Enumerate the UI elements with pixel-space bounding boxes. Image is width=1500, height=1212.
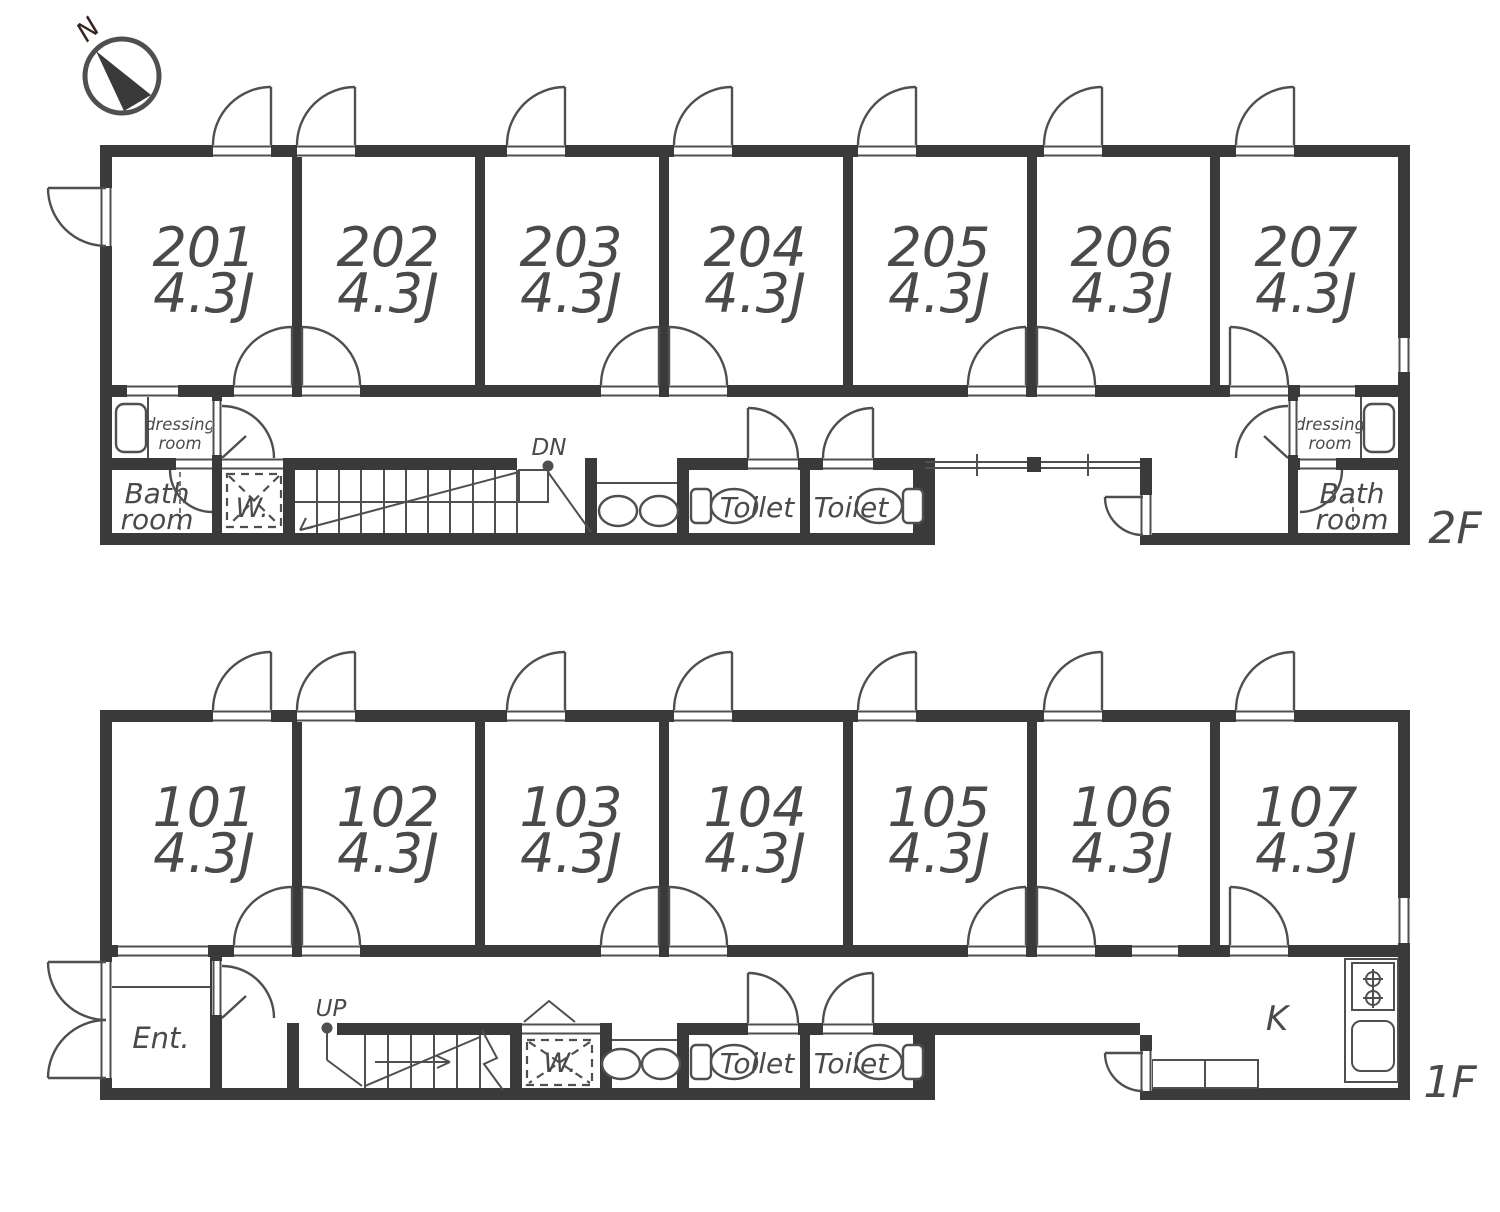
entrance-door-icon [48,1020,106,1078]
compass: N [71,12,159,113]
washer-label: W. [543,1048,576,1079]
washer-label: W. [235,493,268,524]
room-size: 4.3J [704,822,806,885]
dressing-door-icon [1236,401,1298,458]
window-east-2f [1398,338,1410,372]
window-east-1f [1398,898,1410,943]
washstand-2f [597,483,678,526]
dressing-room-left-2f: dressing room [116,397,215,458]
floor-plan-svg: N [0,0,1500,1212]
toilet-door-icon [823,408,873,470]
dressing-room-label: dressing [1295,415,1365,434]
floor-1f: Ent. UP W. [48,652,1477,1108]
entrance-door-icon [48,962,106,1020]
stairs-2f: DN [295,435,591,533]
dressing-room-right-2f: dressing room [1295,397,1394,458]
entrance-room-1f: Ent. [112,987,210,1055]
stairs-down-label: DN [532,435,567,461]
toilet-label: Toilet [814,1047,890,1080]
room-labels-2f: 201 4.3J 202 4.3J 203 4.3J 204 4.3J 205 … [152,216,1357,325]
dressing-door-icon [212,401,274,458]
toilet-door-icon [748,973,798,1035]
room-size: 4.3J [520,822,622,885]
bath-room-right-2f: Bath room [1315,477,1388,536]
walls-1f [100,710,1410,1100]
room-size: 4.3J [153,262,255,325]
toilet-label: Toilet [814,491,890,524]
kitchen-1f: K [1152,959,1398,1088]
bath-room-label: room [120,503,193,536]
washer-space-1f: W. [522,1001,600,1085]
floor-label-2f: 2F [1428,503,1482,554]
window-leaf-icon [48,188,106,246]
room-size: 4.3J [1071,822,1173,885]
bath-room-label: room [1315,503,1388,536]
service-door-icon [1105,495,1152,535]
stairs-1f: UP [316,996,503,1090]
toilet-tank-icon [903,1045,923,1079]
kitchen-label: K [1266,999,1291,1039]
toilet-label: Toilet [720,1047,796,1080]
room-size: 4.3J [520,262,622,325]
toilet-label: Toilet [720,491,796,524]
room-size: 4.3J [1071,262,1173,325]
walls-2f [100,145,1410,545]
room-size: 4.3J [337,262,439,325]
room-size: 4.3J [888,822,990,885]
service-door-icon [1105,1051,1152,1091]
dressing-room-label: room [158,434,201,453]
window-west-2f [100,188,112,246]
floor-label-1f: 1F [1423,1057,1477,1108]
entry-step [1152,1060,1205,1088]
stove-burner-icon [1363,969,1383,1008]
bath-room-left-2f: Bath room [120,472,193,536]
floor-plan: N [0,0,1500,1212]
corridor-window-2f [925,454,1140,476]
room-size: 4.3J [1255,262,1357,325]
room-size: 4.3J [888,262,990,325]
washer-space-2f: W. [222,458,283,527]
stairs-up-label: UP [316,996,347,1022]
entry-step [1205,1060,1258,1088]
room-size: 4.3J [337,822,439,885]
room-size: 4.3J [704,262,806,325]
entrance-label: Ent. [132,1021,189,1055]
toilet-tank-icon [691,1045,711,1079]
washstand-1f [602,1040,680,1079]
toilet-door-icon [823,973,873,1035]
room-size: 4.3J [1255,822,1357,885]
room-size: 4.3J [153,822,255,885]
toilet-door-icon [748,408,798,470]
floor-2f: dressing room dressing room Bath room Ba… [48,87,1482,554]
toilet-tank-icon [691,489,711,523]
dressing-room-label: dressing [145,415,215,434]
entrance-hall-door-icon [212,961,274,1018]
toilet-tank-icon [903,489,923,523]
room-labels-1f: 101 4.3J 102 4.3J 103 4.3J 104 4.3J 105 … [152,776,1357,885]
dressing-room-label: room [1308,434,1351,453]
kitchen-sink-icon [1352,1021,1394,1071]
